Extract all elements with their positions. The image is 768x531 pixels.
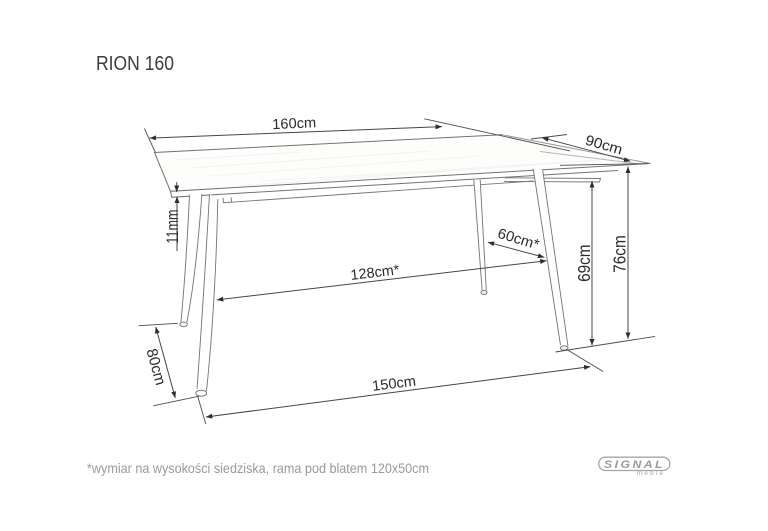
svg-text:RION 160: RION 160 — [96, 52, 174, 75]
svg-text:150cm: 150cm — [371, 374, 417, 395]
svg-text:128cm*: 128cm* — [350, 262, 401, 284]
svg-text:60cm*: 60cm* — [496, 226, 542, 254]
svg-text:76cm: 76cm — [609, 235, 629, 272]
svg-text:meble: meble — [637, 470, 665, 477]
svg-text:80cm: 80cm — [143, 347, 169, 387]
svg-text:*wymiar na wysokości siedziska: *wymiar na wysokości siedziska, rama pod… — [87, 460, 429, 476]
svg-text:11mm: 11mm — [165, 209, 183, 243]
svg-text:69cm: 69cm — [574, 245, 594, 282]
svg-text:160cm: 160cm — [272, 115, 317, 133]
